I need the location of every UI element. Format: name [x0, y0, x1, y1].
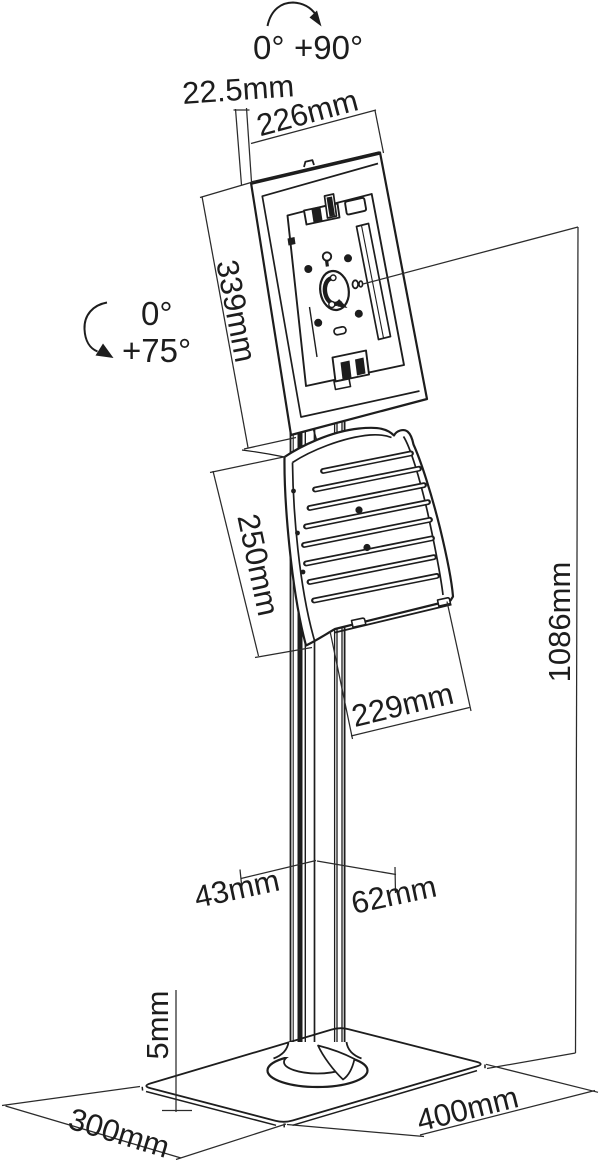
- svg-text:0°: 0°: [253, 29, 285, 66]
- svg-text:1086mm: 1086mm: [542, 562, 577, 683]
- svg-text:+90°: +90°: [294, 29, 363, 66]
- svg-text:+75°: +75°: [122, 332, 191, 369]
- svg-text:0°: 0°: [141, 295, 173, 332]
- svg-text:5mm: 5mm: [140, 991, 175, 1060]
